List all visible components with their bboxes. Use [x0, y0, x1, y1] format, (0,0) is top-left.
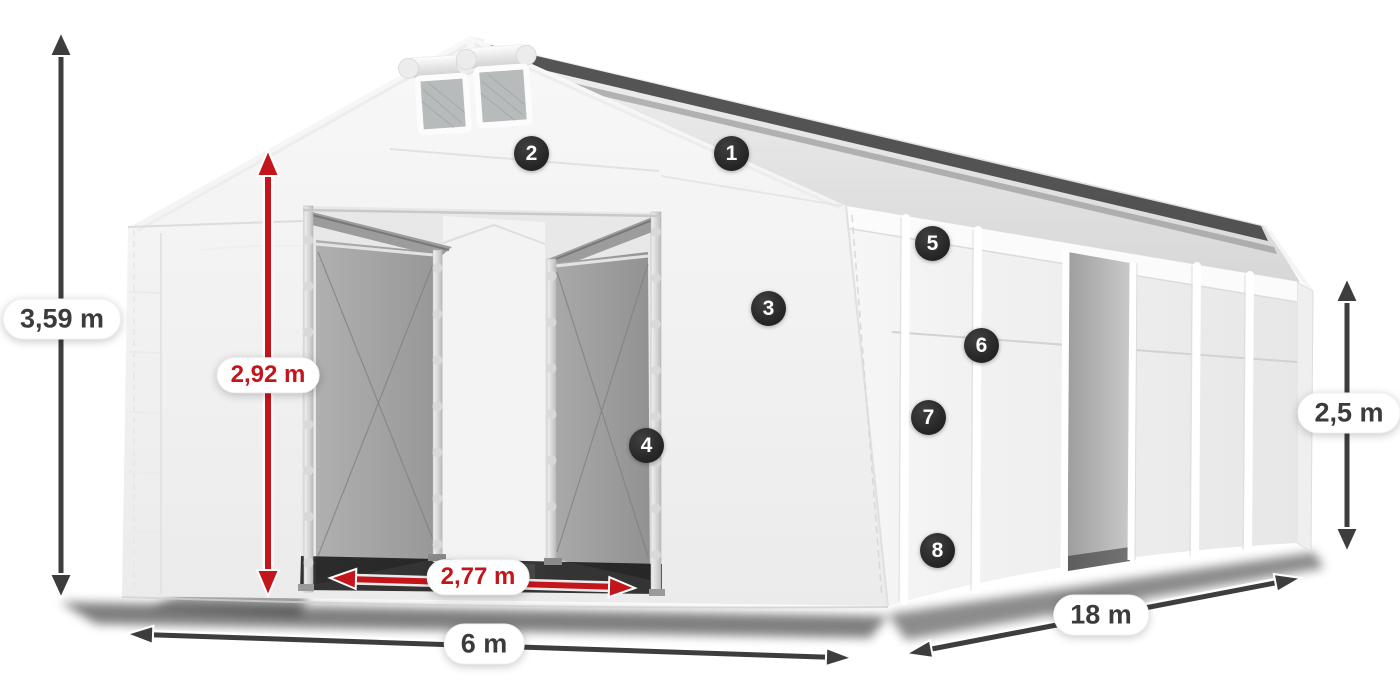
dimension-label-gate-height: 2,92 m [217, 357, 320, 393]
front-gate-opening [298, 206, 665, 596]
dimension-label-side-length: 18 m [1053, 594, 1149, 635]
feature-badge-8: 8 [920, 533, 955, 568]
dimension-label-gate-width: 2,77 m [427, 559, 530, 595]
dimension-label-side-height: 2,5 m [1297, 392, 1400, 433]
product-dimension-diagram: 3,59 m 2,92 m 2,77 m 6 m 18 m 2,5 m 1 2 … [0, 0, 1400, 700]
sliding-gate-panel-left [316, 240, 434, 584]
feature-badge-2: 2 [514, 136, 549, 171]
side-door-opening [1064, 250, 1137, 572]
feature-badge-3: 3 [751, 291, 786, 326]
tent-illustration [0, 0, 1400, 700]
feature-badge-7: 7 [911, 400, 946, 435]
sliding-gate-panel-right [555, 252, 650, 580]
feature-badge-1: 1 [714, 136, 749, 171]
feature-badge-4: 4 [629, 428, 664, 463]
feature-badge-6: 6 [964, 328, 999, 363]
feature-badge-5: 5 [915, 226, 950, 261]
dimension-label-total-height: 3,59 m [3, 298, 121, 339]
interior-far-view [443, 216, 545, 583]
dimension-label-front-width: 6 m [444, 623, 525, 664]
